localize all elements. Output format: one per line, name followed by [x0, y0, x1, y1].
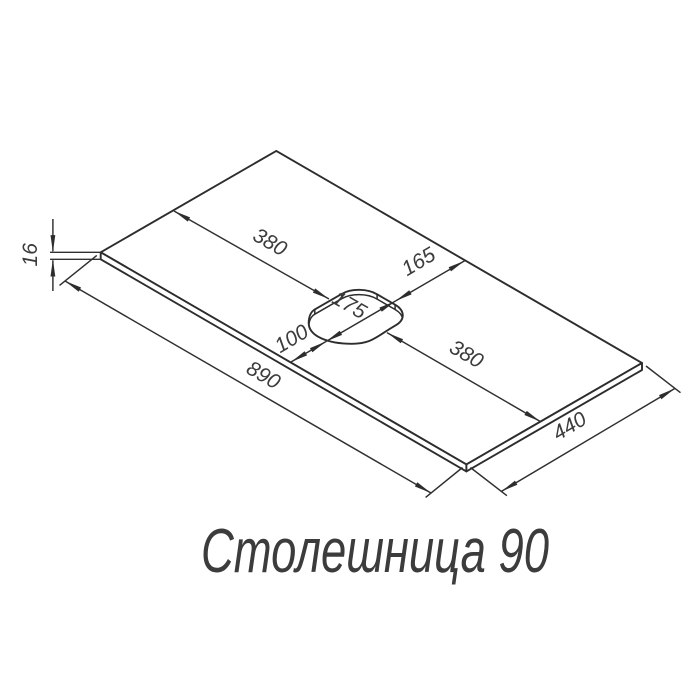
- svg-text:Столешница 90: Столешница 90: [201, 517, 549, 586]
- svg-text:16: 16: [19, 243, 42, 267]
